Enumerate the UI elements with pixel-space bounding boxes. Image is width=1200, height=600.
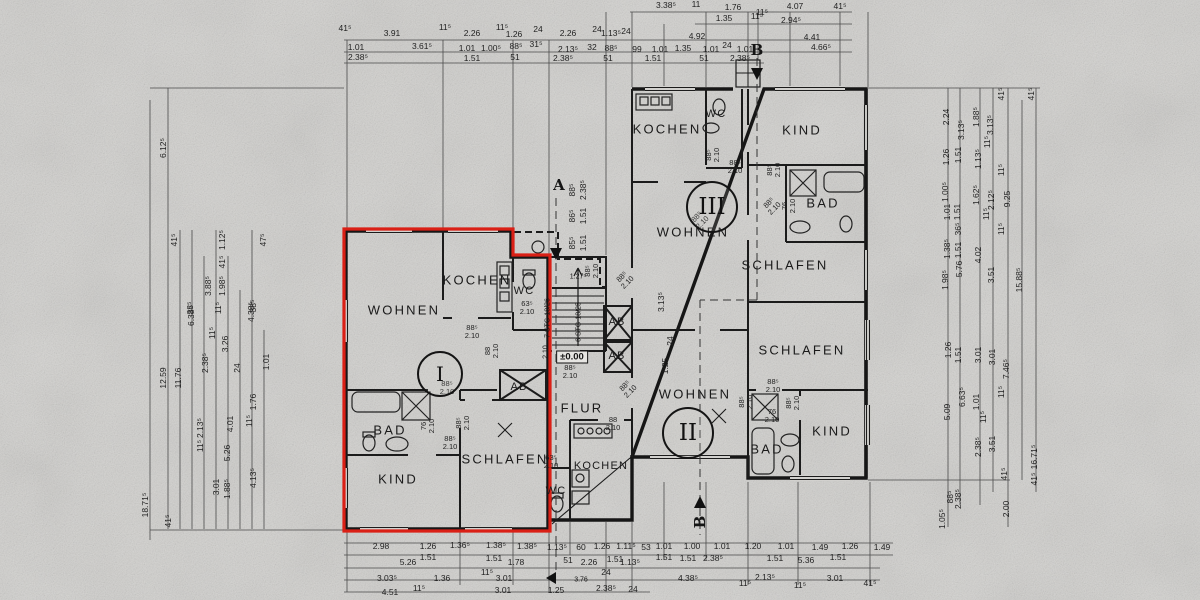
dimension-label: 1.51	[656, 552, 673, 562]
dimension-label: 1.13⁵	[601, 28, 621, 38]
dimension-label: 1.00⁵	[940, 182, 950, 202]
dimension-label: 1.49	[812, 542, 829, 552]
dimension-label: 51	[603, 53, 612, 63]
dimension-label: 6.63⁵	[957, 387, 967, 407]
dimension-label: 1.00	[684, 541, 701, 551]
dimension-label: 4.01	[225, 416, 235, 433]
dimension-label: 11	[692, 0, 701, 9]
dimension-label: 1.38⁵	[942, 239, 952, 259]
room-label: SCHLAFEN	[759, 343, 846, 358]
dimension-label: 11⁵	[481, 567, 493, 577]
dimension-label: 1.01	[348, 42, 365, 52]
dimension-label: 1.51	[953, 242, 963, 259]
dimension-label: 1.51	[680, 553, 697, 563]
dimension-label: 1.51	[767, 553, 784, 563]
dimension-label: 88⁵	[510, 41, 523, 51]
dimension-label: 1.76	[725, 2, 742, 12]
room-label: AB	[608, 316, 625, 328]
room-label: FLUR	[561, 401, 604, 416]
dimension-label: 4.41	[804, 32, 821, 42]
dimension-label: 1.26	[941, 149, 951, 166]
dimension-label: 1.51	[578, 208, 588, 225]
dimension-label: 41⁵	[163, 515, 173, 528]
dimension-label: 15.88⁵	[1014, 268, 1024, 293]
door-size-label: 63⁵2.10	[544, 454, 559, 471]
dimension-label: 24	[621, 26, 630, 36]
dimension-label: 11⁵	[413, 583, 425, 593]
dimension-label: 4.92	[689, 31, 706, 41]
dimension-label: 11⁵	[207, 327, 217, 339]
dimension-label: 4.07	[787, 1, 804, 11]
dimension-label: 11⁵	[978, 411, 988, 423]
dimension-label: 3.01	[973, 347, 983, 364]
dimension-label: 5.09	[942, 404, 952, 421]
dimension-label: 3.13⁵	[656, 292, 666, 312]
dimension-label: 2.38⁵	[553, 53, 573, 63]
dimension-label: 11⁵	[213, 302, 223, 314]
door-size-label: 88⁵2.10	[761, 195, 783, 217]
dimension-label: 47⁵	[258, 234, 268, 247]
dimension-label: 2.26	[464, 28, 481, 38]
door-size-label: 88⁵2.10	[584, 264, 601, 279]
labels-layer: WOHNENKOCHENWCBADKINDSCHLAFENABFLURABABK…	[0, 0, 1200, 600]
dimension-label: 1.01	[261, 354, 271, 371]
dimension-label: 3.01	[496, 573, 513, 583]
dimension-label: 1.26	[842, 541, 859, 551]
room-label: KIND	[782, 123, 822, 138]
dimension-label: 5.36	[798, 555, 815, 565]
dimension-label: 41⁵	[834, 1, 847, 11]
dimension-label: 24	[232, 363, 242, 372]
dimension-label: 51	[563, 555, 572, 565]
dimension-label: 1.01	[459, 43, 476, 53]
section-marker: B	[691, 516, 709, 529]
room-label: WOHNEN	[659, 387, 731, 402]
room-label: KIND	[812, 424, 852, 439]
door-size-label: 88⁵2.10	[785, 396, 802, 411]
dimension-label: 41⁵	[169, 234, 179, 247]
dimension-label: 1.76	[248, 394, 258, 411]
dimension-label: 3.91	[384, 28, 401, 38]
dimension-label: 1.35	[716, 13, 733, 23]
dimension-label: 1.38⁵	[486, 540, 506, 550]
dimension-label: 3.51	[987, 436, 997, 453]
section-marker: 2.10	[543, 345, 550, 359]
room-label: KOCHEN	[574, 460, 628, 472]
room-label: WC	[546, 485, 567, 497]
dimension-label: 11⁵	[751, 11, 763, 21]
room-label: AB	[510, 381, 527, 393]
floor-plan-canvas: WOHNENKOCHENWCBADKINDSCHLAFENABFLURABABK…	[0, 0, 1200, 600]
dimension-label: 1.51	[953, 347, 963, 364]
room-label: WC	[514, 285, 535, 297]
section-marker: A	[553, 176, 565, 194]
dimension-label: 1.25	[660, 358, 670, 375]
dimension-label: 1.51	[420, 552, 437, 562]
dimension-label: 1.51	[645, 53, 662, 63]
dimension-label: 88⁵	[567, 184, 577, 197]
dimension-label: 1.35	[675, 43, 692, 53]
dimension-label: 3.88⁵	[203, 276, 213, 296]
room-label: KIND	[378, 472, 418, 487]
section-marker: B	[751, 41, 764, 59]
dimension-label: 5.26	[400, 557, 417, 567]
door-size-label: 882.10	[484, 344, 501, 359]
dimension-label: 11⁵	[195, 440, 205, 452]
dimension-label: 41⁵	[864, 578, 877, 588]
dimension-label: 4.13⁵	[248, 468, 258, 488]
dimension-label: 99	[632, 44, 641, 54]
dimension-label: 12.59	[158, 367, 168, 388]
dimension-label: 24	[601, 567, 610, 577]
dimension-label: 11⁵	[996, 223, 1006, 235]
dimension-label: 41⁵	[999, 468, 1009, 481]
dimension-label: 1.26	[420, 541, 437, 551]
dimension-label: 2.26	[581, 557, 598, 567]
door-size-label: 88⁵2.10	[443, 435, 458, 452]
door-size-label: 88⁵2.10	[766, 163, 783, 178]
room-label: BAD	[750, 442, 783, 457]
dimension-label: 1.01	[778, 541, 795, 551]
dimension-label: 86⁵	[567, 210, 577, 223]
dimension-label: 41⁵	[1026, 88, 1036, 101]
room-label: BAD	[806, 196, 839, 211]
unit-badge: III	[686, 181, 738, 233]
section-marker: ±0.00	[556, 351, 588, 364]
dimension-label: 2.00	[1001, 501, 1011, 518]
door-size-label: 88⁵2.10	[738, 395, 755, 410]
room-label: KOCHEN	[633, 122, 702, 137]
dimension-label: 6.38⁵	[186, 306, 196, 326]
dimension-label: 3.61⁵	[412, 41, 432, 51]
door-size-label: 88⁵2.10	[705, 148, 722, 163]
section-marker: 3.76	[574, 577, 588, 584]
dimension-label: 41⁵	[217, 256, 227, 269]
dimension-label: 1.62⁵	[971, 185, 981, 205]
dimension-label: 3.38⁵	[656, 0, 676, 10]
dimension-label: 88⁵	[605, 43, 618, 53]
dimension-label: 11.76	[173, 368, 183, 389]
door-size-label: 88⁵2.10	[766, 378, 781, 395]
dimension-label: 1.51	[486, 553, 503, 563]
dimension-label: 1.20	[745, 541, 762, 551]
room-label: AB	[608, 350, 625, 362]
dimension-label: 1.13⁵	[620, 557, 640, 567]
dimension-label: 1.01	[703, 44, 720, 54]
dimension-label: 3.13⁵	[985, 115, 995, 135]
dimension-label: 5.26	[222, 445, 232, 462]
dimension-label: 51	[699, 53, 708, 63]
dimension-label: 16.71⁵	[1029, 445, 1039, 470]
dimension-label: 1.51	[830, 552, 847, 562]
dimension-label: 1.12⁵	[217, 230, 227, 250]
room-label: WOHNEN	[368, 303, 440, 318]
dimension-label: 7.46⁵	[1001, 359, 1011, 379]
dimension-label: 11⁵	[982, 136, 992, 148]
dimension-label: 2.38⁵	[200, 353, 210, 373]
dimension-label: 1.26	[943, 342, 953, 359]
dimension-label: 2.13⁵	[195, 418, 205, 438]
room-label: WC	[706, 108, 727, 120]
dimension-label: 4.02	[973, 247, 983, 264]
dimension-label: 1.78	[508, 557, 525, 567]
dimension-label: 1.51	[464, 53, 481, 63]
unit-badge: I	[417, 351, 463, 397]
dimension-label: 1.49	[874, 542, 891, 552]
dimension-label: 3.26	[220, 336, 230, 353]
door-size-label: 63⁵2.10	[520, 300, 535, 317]
unit-badge: II	[662, 407, 714, 459]
dimension-label: 51	[510, 52, 519, 62]
dimension-label: 11⁵	[996, 164, 1006, 176]
dimension-label: 1.51	[952, 204, 962, 221]
dimension-label: 1.26	[594, 541, 611, 551]
dimension-label: 2.38⁵	[578, 180, 588, 200]
door-size-label: 762.10	[765, 408, 780, 425]
dimension-label: 31⁵	[530, 39, 543, 49]
dimension-label: 1.11⁵	[616, 541, 635, 551]
dimension-label: 5.76	[954, 261, 964, 278]
dimension-label: 2.38⁵	[973, 437, 983, 457]
door-size-label: 88⁵2.10	[563, 364, 578, 381]
door-size-label: 88⁵2.10	[455, 416, 472, 431]
dimension-label: 1.05⁵	[937, 509, 947, 529]
dimension-label: 2.38⁵	[348, 52, 368, 62]
dimension-label: 3.51	[986, 267, 996, 284]
dimension-label: 2.98	[373, 541, 390, 551]
dimension-label: 1.25	[548, 585, 565, 595]
dimension-label: 3.01	[987, 349, 997, 366]
dimension-label: 1.01	[652, 44, 669, 54]
dimension-label: 1.51	[578, 235, 588, 252]
room-label: BAD	[373, 423, 406, 438]
dimension-label: 24	[628, 584, 637, 594]
dimension-label: 60	[576, 542, 585, 552]
dimension-label: 1.26	[506, 29, 523, 39]
door-size-label: 882.10	[606, 416, 621, 433]
dimension-label: 1.36	[434, 573, 451, 583]
dimension-label: 1.00⁵	[481, 43, 501, 53]
dimension-label: 9.25	[1002, 191, 1012, 208]
dimension-label: 3.13⁵	[956, 120, 966, 140]
section-marker: 6 STG 18/25	[576, 302, 583, 342]
dimension-label: 4.51	[382, 587, 399, 597]
dimension-label: 24	[665, 336, 675, 345]
room-label: SCHLAFEN	[742, 258, 829, 273]
door-size-label: 88⁵2.10	[614, 269, 636, 291]
dimension-label: 1.01	[714, 541, 731, 551]
dimension-label: 1.13⁵	[973, 149, 983, 169]
dimension-label: 1.88⁵	[971, 107, 981, 127]
dimension-label: 41⁵	[1029, 473, 1039, 486]
door-size-label: 88⁵2.10	[465, 324, 480, 341]
dimension-label: 2.24	[941, 109, 951, 126]
dimension-label: 2.94⁵	[781, 15, 801, 25]
dimension-label: 11⁵	[439, 22, 451, 32]
dimension-label: 85⁵	[567, 237, 577, 250]
dimension-label: 2.26	[560, 28, 577, 38]
dimension-label: 3.01	[211, 479, 221, 496]
dimension-label: 18.71⁵	[140, 493, 150, 518]
room-label: KOCHEN	[443, 273, 512, 288]
door-size-label: 88⁵2.10	[728, 159, 743, 176]
section-marker: 7 STG 18/26	[545, 298, 552, 338]
dimension-label: 4.38⁵	[678, 573, 698, 583]
dimension-label: 3.01	[495, 585, 512, 595]
dimension-label: 32	[587, 42, 596, 52]
dimension-label: 2.38⁵	[703, 553, 723, 563]
dimension-label: 11⁵	[794, 580, 806, 590]
dimension-label: 41⁵	[339, 23, 352, 33]
dimension-label: 24	[722, 40, 731, 50]
dimension-label: 4.38⁵	[246, 302, 256, 322]
dimension-label: 3.03⁵	[377, 573, 397, 583]
dimension-label: 3.01	[827, 573, 844, 583]
dimension-label: 1.98⁵	[217, 276, 227, 296]
door-size-label: 88⁵2.10	[617, 378, 639, 400]
dimension-label: 1.51	[953, 147, 963, 164]
dimension-label: 53	[641, 542, 650, 552]
dimension-label: 4.66⁵	[811, 42, 831, 52]
dimension-label: 36⁵	[953, 223, 963, 236]
room-label: SCHLAFEN	[462, 452, 549, 467]
dimension-label: 1.01	[656, 541, 673, 551]
dimension-label: 24	[533, 24, 542, 34]
door-size-label: 762.10	[420, 419, 437, 434]
dimension-label: 11⁵	[981, 208, 991, 220]
dimension-label: 11⁵	[996, 386, 1006, 398]
dimension-label: 1.88⁵	[222, 479, 232, 499]
dimension-label: 1.01	[971, 394, 981, 411]
dimension-label: 6.12⁵	[158, 138, 168, 158]
dimension-label: 1.98⁵	[940, 270, 950, 290]
dimension-label: 1.36⁵	[450, 540, 470, 550]
dimension-label: 11⁵	[244, 415, 254, 427]
dimension-label: 2.38⁵	[953, 489, 963, 509]
dimension-label: 2.38⁵	[730, 53, 750, 63]
dimension-label: 41⁵	[996, 88, 1006, 101]
dimension-label: 1.01	[942, 204, 952, 221]
dimension-label: 2.38⁵	[596, 583, 616, 593]
dimension-label: 2.13⁵	[755, 572, 775, 582]
dimension-label: 1.38⁵	[517, 541, 537, 551]
dimension-label: 11⁵	[739, 578, 751, 588]
dimension-label: 1.13⁵	[547, 542, 567, 552]
